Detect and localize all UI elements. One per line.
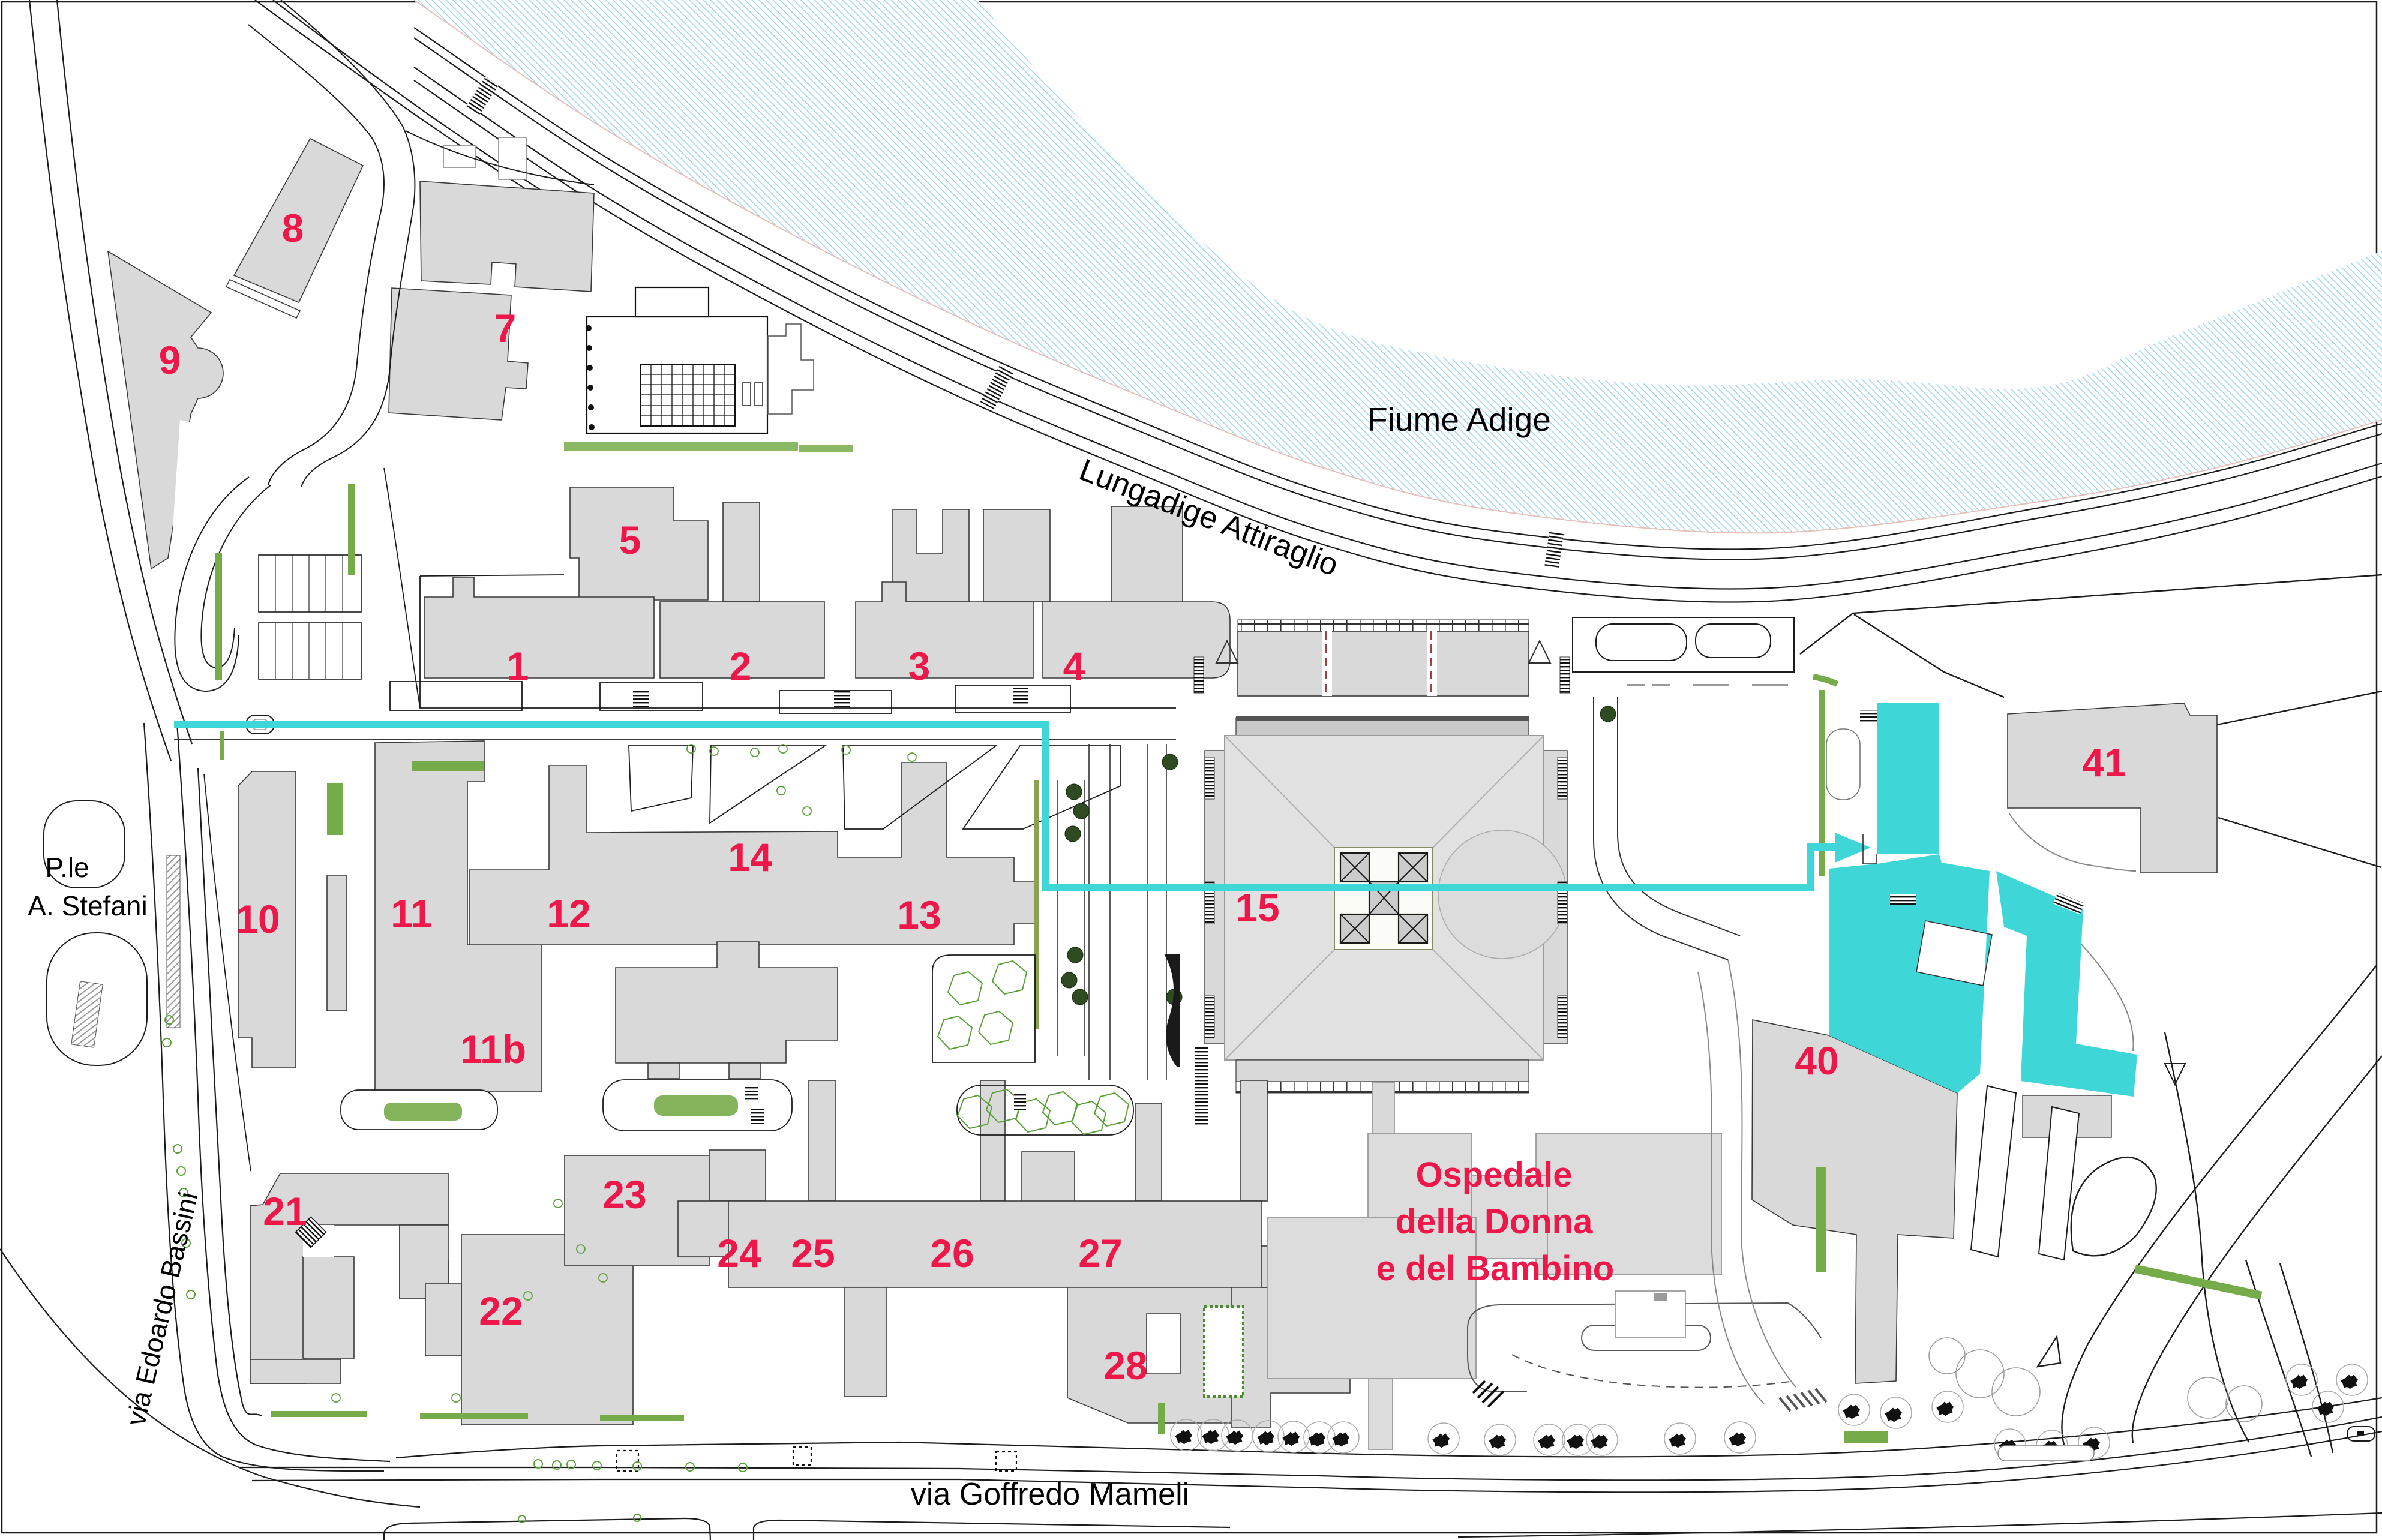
svg-text:27: 27 [1078,1231,1122,1275]
svg-text:Ospedale: Ospedale [1415,1155,1572,1194]
svg-text:12: 12 [547,891,590,936]
svg-text:della Donna: della Donna [1396,1202,1593,1241]
svg-text:9: 9 [159,338,181,382]
svg-text:14: 14 [728,835,772,879]
svg-text:28: 28 [1103,1343,1147,1388]
svg-text:2: 2 [730,644,752,688]
svg-text:via Goffredo Mameli: via Goffredo Mameli [911,1477,1189,1512]
svg-text:40: 40 [1795,1038,1838,1083]
svg-text:11b: 11b [460,1027,526,1071]
svg-text:3: 3 [908,644,931,688]
svg-text:A. Stefani: A. Stefani [28,890,147,921]
svg-text:24: 24 [717,1231,761,1275]
svg-text:8: 8 [282,206,304,250]
svg-text:25: 25 [791,1231,835,1275]
svg-text:22: 22 [479,1289,523,1333]
svg-text:11: 11 [391,891,433,936]
svg-text:P.le: P.le [45,852,89,883]
svg-text:13: 13 [897,893,941,937]
svg-text:41: 41 [2082,740,2126,785]
svg-text:7: 7 [494,306,517,350]
svg-text:Fiume Adige: Fiume Adige [1367,401,1551,438]
svg-text:e del Bambino: e del Bambino [1376,1249,1614,1288]
svg-text:5: 5 [619,518,641,562]
svg-text:21: 21 [263,1189,307,1233]
svg-text:1: 1 [507,644,529,688]
svg-text:15: 15 [1235,885,1279,930]
svg-text:10: 10 [236,897,280,941]
svg-text:26: 26 [930,1231,974,1275]
svg-text:23: 23 [602,1172,646,1217]
svg-text:4: 4 [1063,644,1085,688]
